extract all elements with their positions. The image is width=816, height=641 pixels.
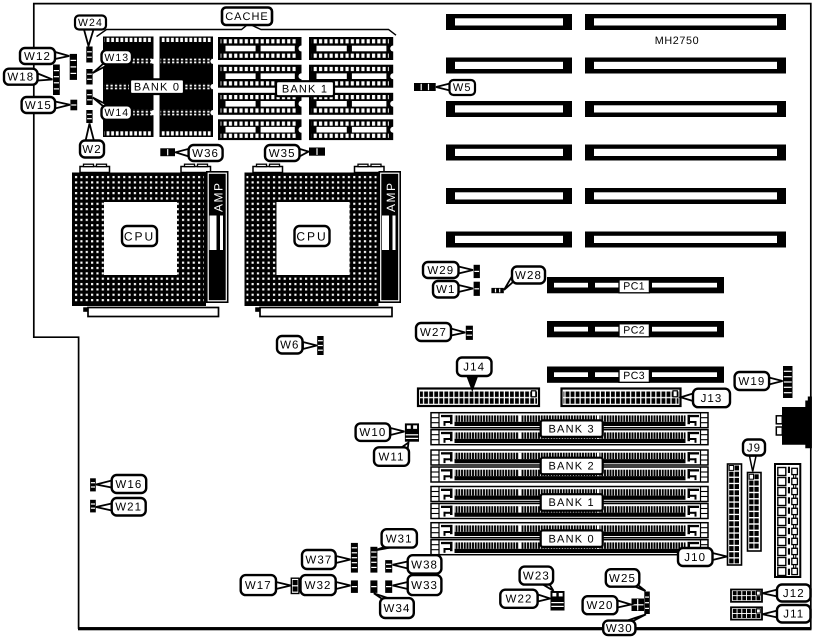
svg-text:W22: W22 (506, 594, 533, 606)
svg-text:W15: W15 (25, 100, 52, 112)
svg-text:CPU: CPU (124, 229, 155, 243)
svg-text:CACHE: CACHE (225, 11, 269, 23)
svg-text:W31: W31 (386, 533, 413, 545)
svg-text:W34: W34 (384, 603, 411, 615)
svg-text:PC1: PC1 (623, 281, 645, 293)
svg-text:W25: W25 (609, 573, 636, 585)
svg-text:W23: W23 (523, 571, 550, 583)
svg-text:J9: J9 (747, 442, 761, 454)
svg-text:BANK 0: BANK 0 (549, 533, 595, 545)
svg-text:J12: J12 (783, 588, 805, 600)
svg-text:W24: W24 (78, 17, 103, 29)
svg-text:W28: W28 (515, 270, 542, 282)
svg-text:W30: W30 (606, 623, 633, 635)
svg-text:BANK 1: BANK 1 (282, 83, 328, 95)
svg-text:W10: W10 (359, 427, 386, 439)
svg-text:W16: W16 (115, 479, 142, 491)
svg-text:PC2: PC2 (623, 325, 645, 337)
svg-text:MH2750: MH2750 (655, 35, 699, 47)
svg-text:J11: J11 (783, 609, 804, 621)
svg-text:W38: W38 (411, 559, 438, 571)
svg-text:J14: J14 (463, 362, 485, 374)
svg-text:J10: J10 (684, 552, 706, 564)
svg-text:W12: W12 (24, 51, 51, 63)
svg-text:W37: W37 (305, 554, 332, 566)
svg-text:W17: W17 (245, 580, 272, 592)
svg-text:W1: W1 (436, 284, 455, 296)
svg-text:W29: W29 (427, 265, 454, 277)
svg-text:W14: W14 (104, 107, 129, 119)
svg-text:W19: W19 (738, 376, 765, 388)
svg-text:W21: W21 (115, 502, 142, 514)
svg-text:AMP: AMP (384, 181, 398, 212)
svg-text:BANK 3: BANK 3 (549, 423, 595, 435)
svg-text:W18: W18 (7, 72, 34, 84)
svg-text:W6: W6 (280, 340, 299, 352)
svg-text:PC3: PC3 (623, 370, 645, 382)
svg-text:BANK 1: BANK 1 (549, 497, 595, 509)
svg-text:BANK 0: BANK 0 (134, 81, 180, 93)
svg-text:W33: W33 (411, 580, 438, 592)
svg-text:W32: W32 (305, 580, 332, 592)
svg-text:W13: W13 (104, 52, 129, 64)
svg-text:W27: W27 (420, 327, 447, 339)
svg-text:W2: W2 (82, 144, 101, 156)
svg-text:W11: W11 (378, 452, 404, 464)
svg-text:AMP: AMP (211, 181, 225, 212)
svg-text:CPU: CPU (296, 229, 327, 243)
svg-text:W36: W36 (192, 148, 219, 160)
svg-text:W20: W20 (587, 600, 614, 612)
svg-text:J13: J13 (701, 393, 723, 405)
svg-text:W35: W35 (269, 148, 296, 160)
svg-text:W5: W5 (453, 82, 472, 94)
svg-text:BANK 2: BANK 2 (549, 461, 595, 473)
